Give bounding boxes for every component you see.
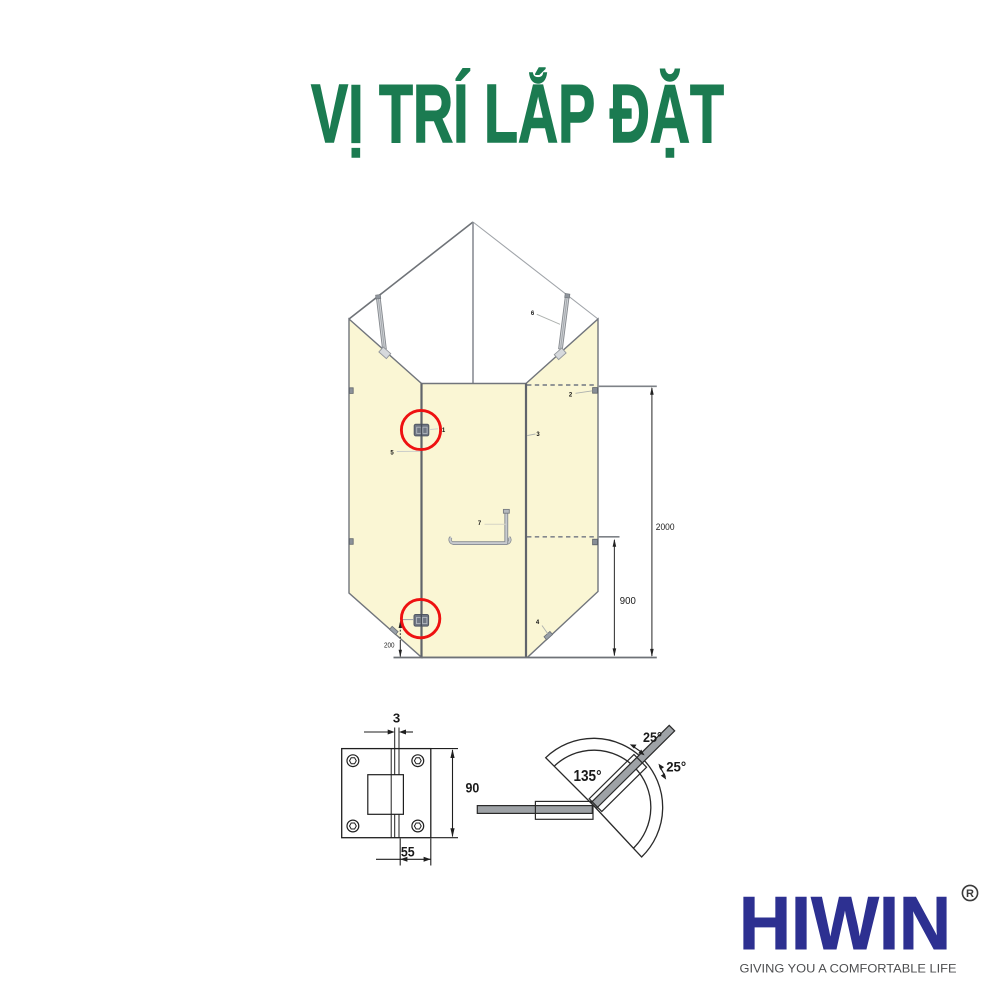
svg-text:55: 55 <box>401 845 415 860</box>
svg-text:25°: 25° <box>643 730 662 745</box>
svg-text:R: R <box>966 888 974 900</box>
svg-text:2000: 2000 <box>656 522 675 532</box>
svg-text:135°: 135° <box>574 768 602 785</box>
svg-text:GIVING YOU A COMFORTABLE LIFE: GIVING YOU A COMFORTABLE LIFE <box>740 961 957 975</box>
svg-text:200: 200 <box>384 641 395 650</box>
svg-text:900: 900 <box>620 596 636 607</box>
svg-text:25°: 25° <box>666 759 686 774</box>
svg-text:3: 3 <box>393 710 400 725</box>
svg-text:90: 90 <box>466 781 480 797</box>
svg-text:VỊ TRÍ LẮP ĐẶT: VỊ TRÍ LẮP ĐẶT <box>311 67 724 160</box>
svg-text:HIWIN: HIWIN <box>739 881 951 965</box>
